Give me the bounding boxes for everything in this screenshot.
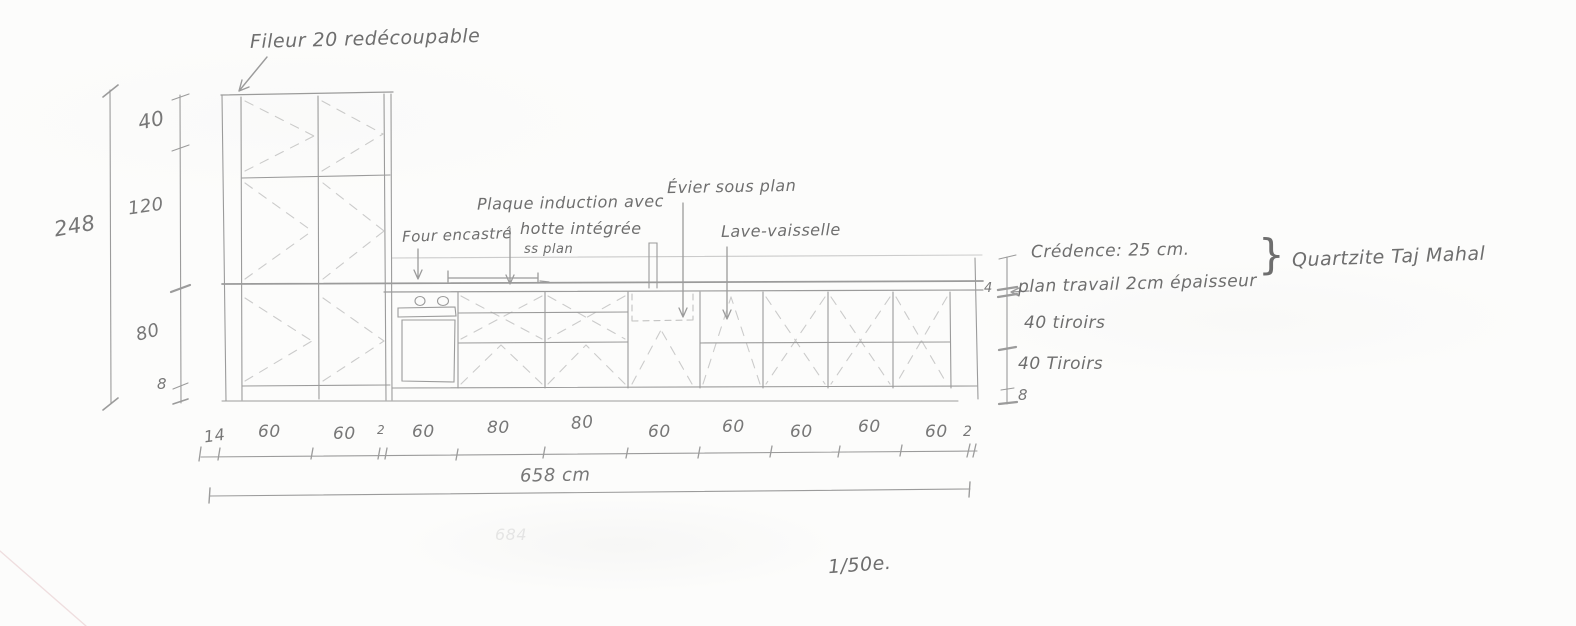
base-cabinets — [234, 258, 978, 401]
dim-total-width: 658 cm — [520, 466, 591, 485]
dim-bottom-60f: 60 — [790, 424, 813, 441]
erased-faint-number: 684 — [495, 527, 527, 543]
oven-arrow — [414, 249, 422, 279]
tall-cabinet — [221, 92, 393, 401]
dim-bottom-60b: 60 — [333, 426, 356, 443]
material-brace: } — [1258, 234, 1285, 276]
left-total-dimension-line — [103, 85, 118, 410]
bottom-segment-dimension-line — [199, 444, 977, 461]
dim-bottom-14: 14 — [203, 427, 226, 446]
annotation-induction-line2: hotte intégrée — [520, 221, 642, 237]
kitchen-elevation-drawing — [0, 0, 1576, 626]
sink-arrow — [679, 203, 687, 317]
oven-symbol — [398, 297, 456, 383]
scanned-sketch-page: Fileur 20 redécoupable Four encastré Pla… — [0, 0, 1576, 626]
dishwasher-arrow — [723, 247, 731, 319]
dim-left-seg-8: 8 — [157, 377, 167, 392]
right-dimension-line — [998, 255, 1017, 404]
dim-bottom-60e: 60 — [722, 419, 745, 436]
dim-bottom-60g: 60 — [858, 419, 881, 436]
dim-bottom-80b: 80 — [570, 414, 594, 433]
annotation-dishwasher: Lave-vaisselle — [721, 222, 841, 240]
annotation-drawers-top: 40 tiroirs — [1024, 315, 1105, 332]
dim-right-plinth: 8 — [1018, 388, 1028, 403]
dim-worktop-thickness: 4 — [984, 282, 993, 295]
dim-left-seg-120: 120 — [127, 196, 165, 219]
annotation-induction-line3: ss plan — [524, 243, 573, 256]
sink-dashed-outline — [632, 294, 693, 321]
dim-bottom-2a: 2 — [377, 424, 385, 436]
scale-note: 1/50e. — [827, 554, 892, 577]
credence-line — [392, 255, 982, 258]
dim-bottom-80a: 80 — [487, 420, 510, 437]
annotation-sink: Évier sous plan — [667, 178, 797, 196]
scan-artifact-line — [0, 551, 86, 626]
dim-bottom-60a: 60 — [258, 424, 281, 441]
annotation-oven: Four encastré — [402, 226, 512, 245]
dim-bottom-2b: 2 — [963, 425, 972, 439]
dim-bottom-60c: 60 — [412, 424, 435, 441]
dim-bottom-60d: 60 — [648, 424, 671, 441]
faucet-symbol — [649, 243, 657, 288]
tall-cabinet-door-swing-dashes — [245, 101, 384, 381]
annotation-induction-line1: Plaque induction avec — [477, 193, 664, 212]
dim-bottom-60h: 60 — [925, 424, 948, 441]
left-segment-dimension-line — [171, 94, 190, 404]
dim-left-seg-40: 40 — [136, 107, 166, 132]
filler-arrow — [239, 57, 267, 91]
worktop-lines — [222, 281, 983, 292]
base-door-swing-dashes — [461, 296, 947, 384]
annotation-credence: Crédence: 25 cm. — [1031, 242, 1190, 262]
annotation-drawers-bottom: 40 Tiroirs — [1018, 356, 1103, 373]
